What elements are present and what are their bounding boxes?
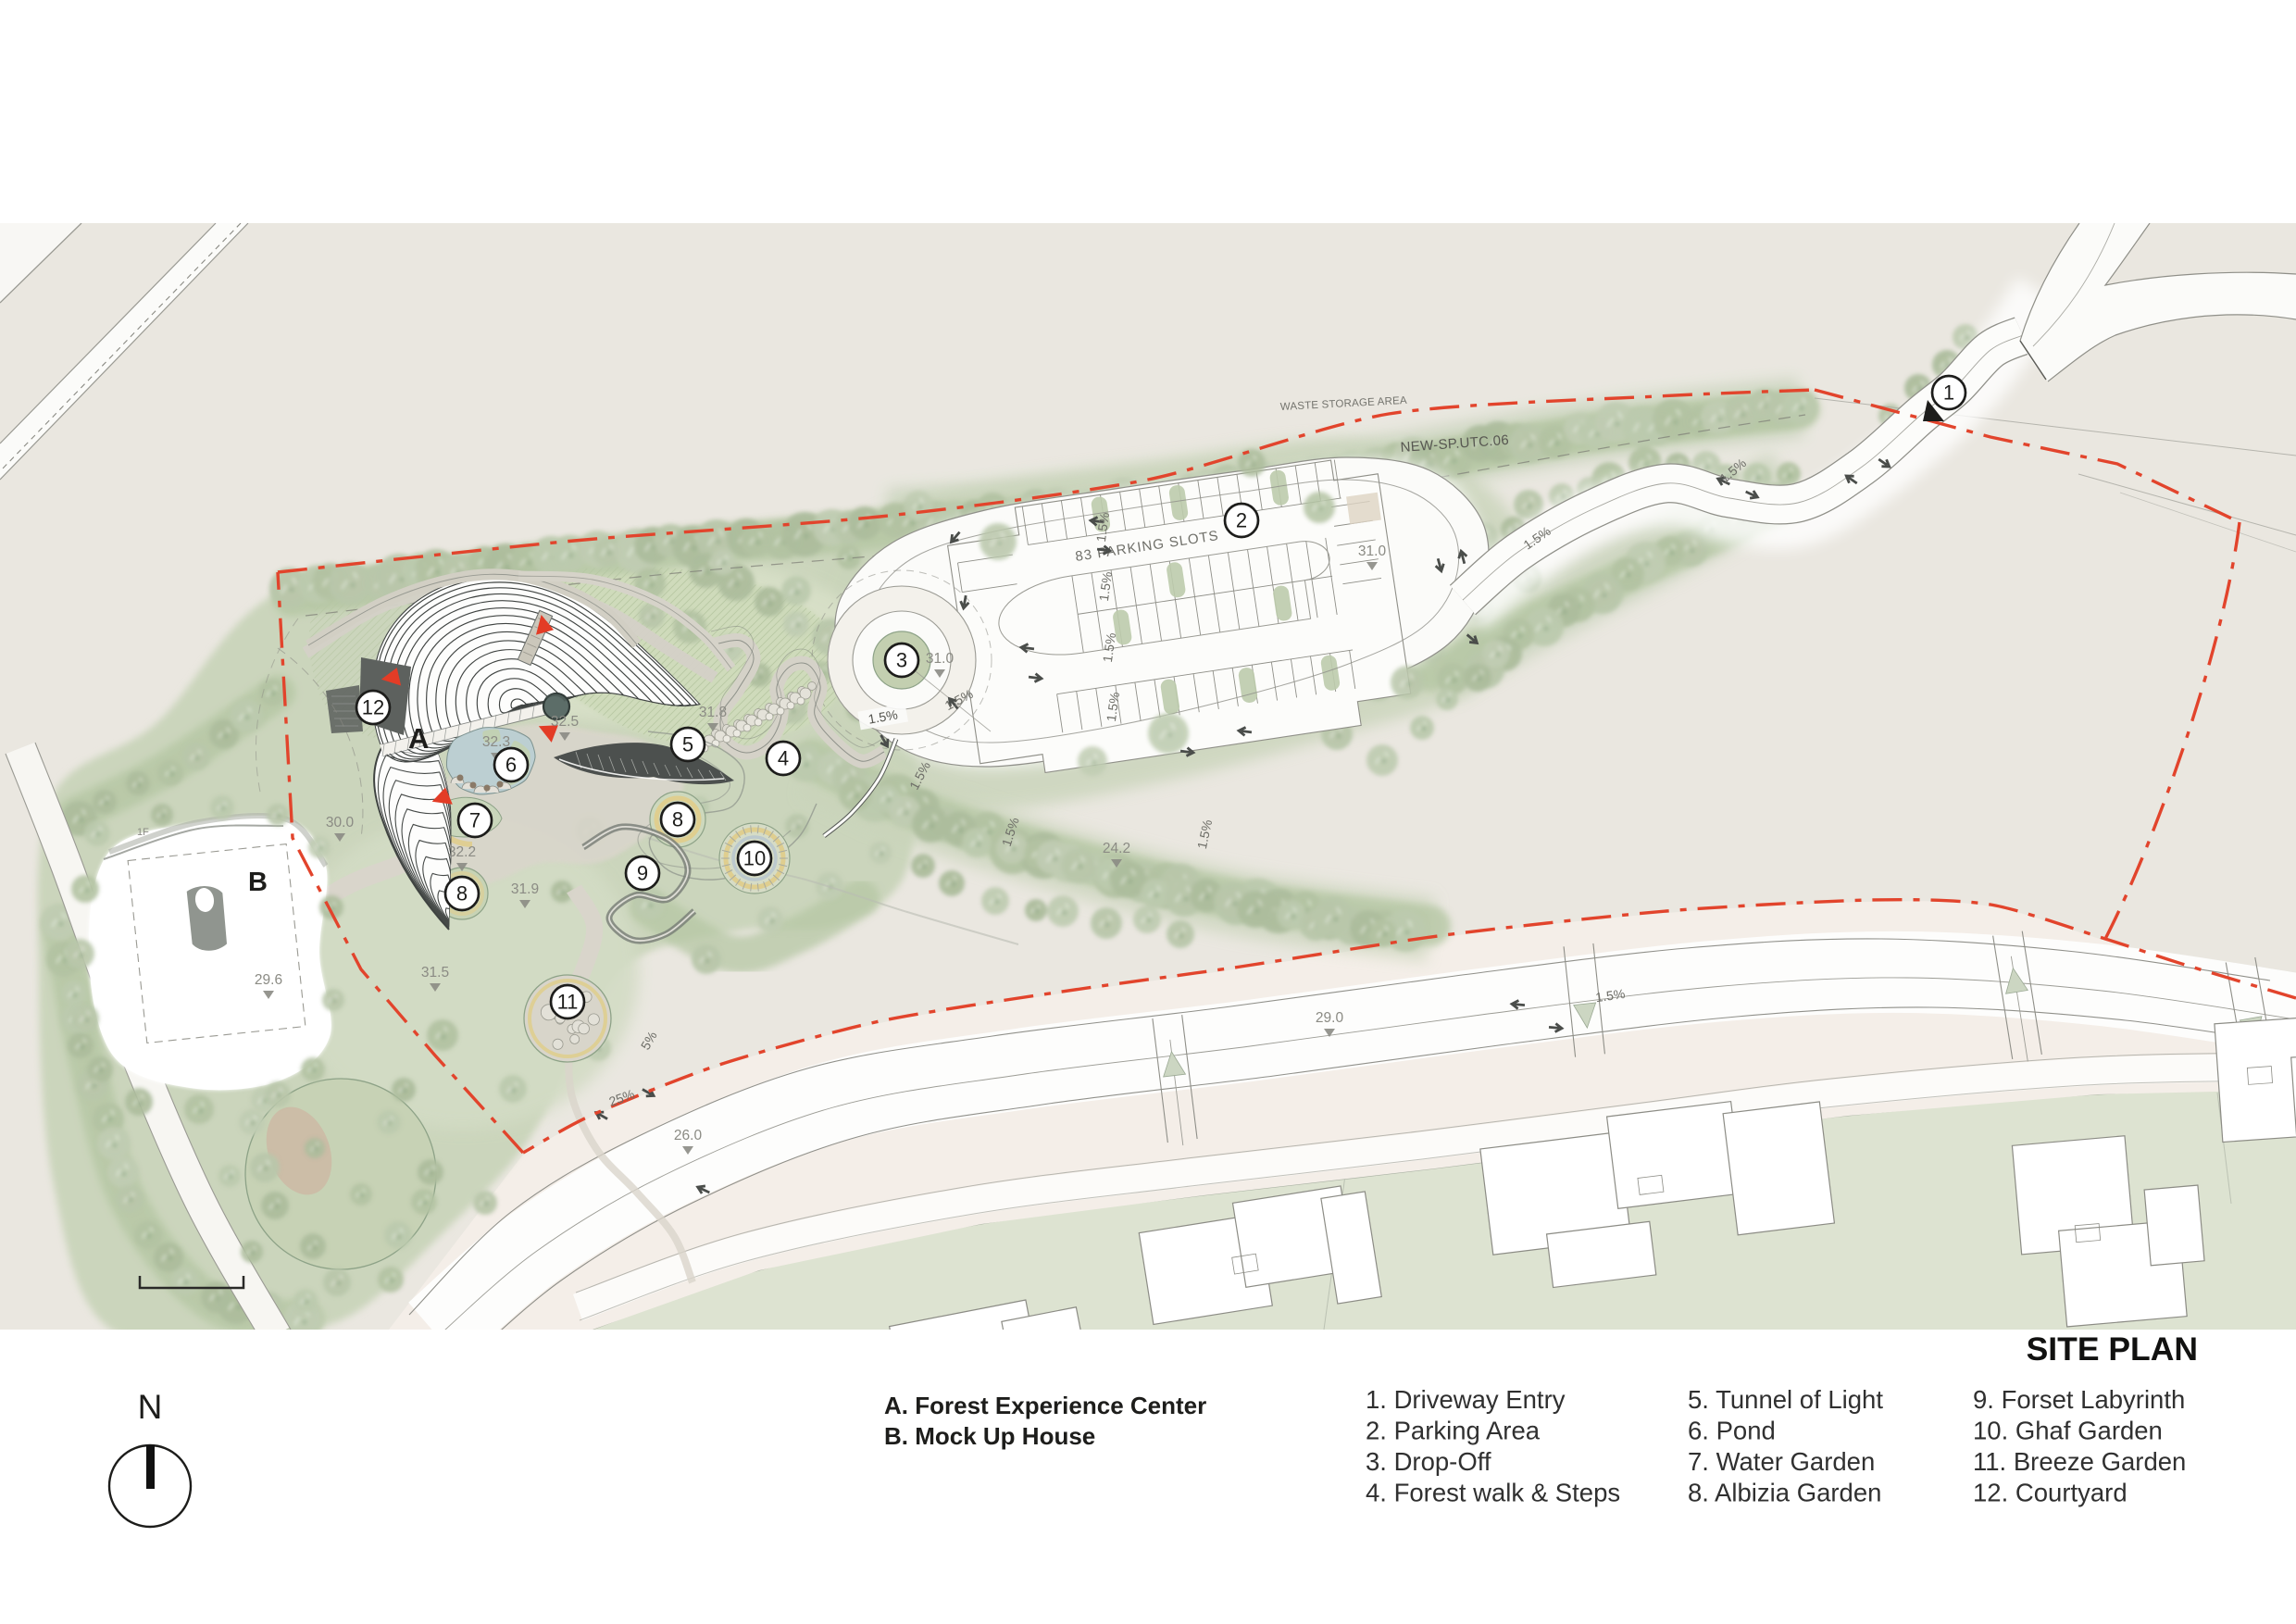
svg-text:4: 4 — [778, 747, 789, 770]
svg-text:30.0: 30.0 — [326, 815, 355, 831]
svg-text:2: 2 — [1236, 509, 1247, 532]
svg-text:11. Breeze Garden: 11. Breeze Garden — [1973, 1447, 2186, 1476]
svg-text:3: 3 — [896, 649, 907, 672]
svg-text:4. Forest walk & Steps: 4. Forest walk & Steps — [1366, 1479, 1620, 1507]
svg-text:3. Drop-Off: 3. Drop-Off — [1366, 1447, 1491, 1476]
svg-text:12: 12 — [362, 696, 384, 719]
svg-text:29.0: 29.0 — [1316, 1010, 1344, 1026]
svg-text:31.8: 31.8 — [699, 705, 727, 720]
svg-text:1: 1 — [1943, 381, 1954, 405]
svg-text:10. Ghaf Garden: 10. Ghaf Garden — [1973, 1417, 2163, 1445]
svg-text:31.5: 31.5 — [421, 965, 449, 981]
svg-text:1. Driveway Entry: 1. Driveway Entry — [1366, 1385, 1566, 1414]
svg-text:31.0: 31.0 — [926, 651, 955, 667]
svg-text:24.2: 24.2 — [1103, 841, 1130, 856]
svg-text:B. Mock Up House: B. Mock Up House — [884, 1422, 1095, 1450]
svg-text:2. Parking Area: 2. Parking Area — [1366, 1417, 1541, 1445]
svg-text:31.0: 31.0 — [1358, 543, 1387, 559]
svg-text:1F: 1F — [137, 827, 149, 838]
svg-text:B: B — [248, 868, 268, 897]
svg-text:A: A — [408, 722, 429, 755]
svg-text:11: 11 — [557, 991, 579, 1014]
svg-text:32.5: 32.5 — [551, 714, 579, 730]
svg-text:9. Forset Labyrinth: 9. Forset Labyrinth — [1973, 1385, 2185, 1414]
svg-text:A. Forest Experience Center: A. Forest Experience Center — [884, 1392, 1206, 1419]
svg-text:31.9: 31.9 — [511, 881, 539, 897]
svg-text:32.2: 32.2 — [448, 844, 476, 860]
svg-text:9: 9 — [637, 862, 648, 885]
svg-text:7: 7 — [469, 809, 480, 832]
svg-text:29.6: 29.6 — [255, 972, 282, 988]
svg-text:5: 5 — [682, 733, 693, 756]
svg-text:7. Water Garden: 7. Water Garden — [1688, 1447, 1875, 1476]
svg-text:8: 8 — [672, 808, 683, 831]
svg-text:SITE PLAN: SITE PLAN — [2027, 1330, 2198, 1368]
svg-text:26.0: 26.0 — [674, 1128, 703, 1143]
svg-text:8: 8 — [456, 882, 468, 906]
svg-text:6. Pond: 6. Pond — [1688, 1417, 1776, 1445]
svg-text:8. Albizia Garden: 8. Albizia Garden — [1688, 1479, 1881, 1507]
svg-text:6: 6 — [505, 754, 517, 777]
svg-text:12. Courtyard: 12. Courtyard — [1973, 1479, 2128, 1507]
svg-text:10: 10 — [743, 847, 766, 870]
svg-text:N: N — [138, 1388, 163, 1426]
svg-text:5. Tunnel of Light: 5. Tunnel of Light — [1688, 1385, 1883, 1414]
